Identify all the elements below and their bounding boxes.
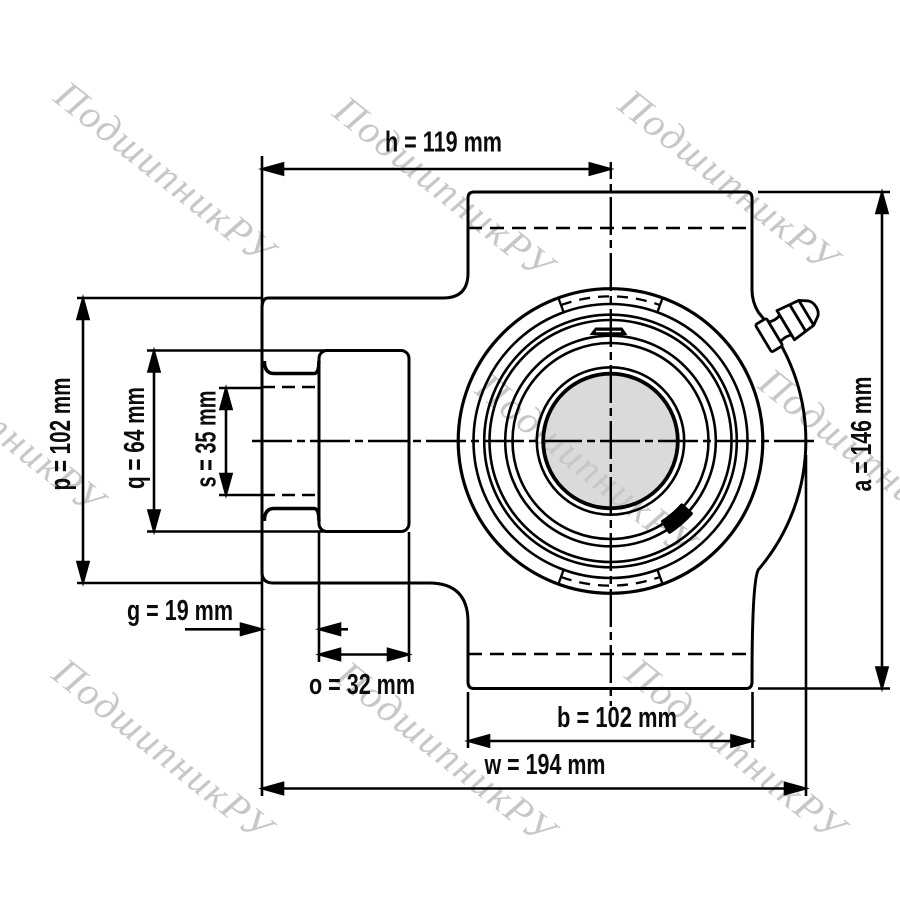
- svg-text:g = 19 mm: g = 19 mm: [127, 595, 233, 627]
- svg-text:p = 102 mm: p = 102 mm: [45, 378, 77, 491]
- svg-text:o = 32 mm: o = 32 mm: [309, 669, 415, 701]
- svg-text:b = 102 mm: b = 102 mm: [557, 702, 677, 734]
- svg-text:w = 194 mm: w = 194 mm: [484, 749, 606, 781]
- svg-text:a = 146 mm: a = 146 mm: [846, 377, 878, 492]
- svg-text:s = 35 mm: s = 35 mm: [191, 391, 223, 488]
- svg-text:q = 64 mm: q = 64 mm: [119, 387, 151, 489]
- svg-text:h = 119 mm: h = 119 mm: [385, 127, 502, 159]
